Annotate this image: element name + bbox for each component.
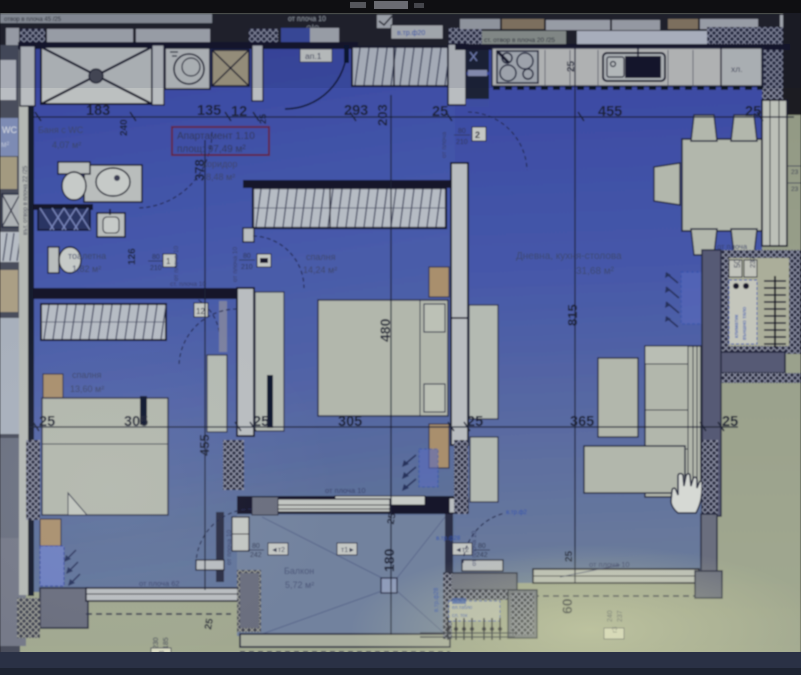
svg-text:80: 80 <box>478 543 486 550</box>
svg-text:12: 12 <box>231 104 247 120</box>
svg-text:1,82 м²: 1,82 м² <box>72 264 101 274</box>
svg-text:от плоча 10: от плоча 10 <box>173 245 180 281</box>
svg-text:ст. плоча 10: ст. плоча 10 <box>170 281 206 288</box>
svg-text:т1►: т1► <box>341 547 355 554</box>
svg-text:климатик: климатик <box>734 314 740 338</box>
svg-text:спалня: спалня <box>306 252 336 262</box>
svg-text:1: 1 <box>166 257 171 266</box>
svg-text:135: 135 <box>197 103 221 119</box>
svg-text:237: 237 <box>750 256 757 268</box>
svg-text:23: 23 <box>791 169 799 176</box>
svg-text:площ: 97,49 м²: площ: 97,49 м² <box>177 144 246 155</box>
svg-text:293: 293 <box>344 103 368 119</box>
svg-text:от плоча 10: от плоча 10 <box>232 246 239 282</box>
svg-text:25: 25 <box>432 104 448 120</box>
svg-text:Апартамент 1.10: Апартамент 1.10 <box>177 131 255 142</box>
svg-text:23: 23 <box>791 186 799 193</box>
svg-text:815: 815 <box>565 304 580 326</box>
svg-text:външно тяло: външно тяло <box>742 307 748 340</box>
svg-text:коридор: коридор <box>203 159 237 169</box>
svg-text:тоалетна: тоалетна <box>68 251 106 261</box>
svg-text:25: 25 <box>467 414 483 430</box>
svg-text:2: 2 <box>475 130 480 140</box>
svg-text:80: 80 <box>152 254 160 261</box>
svg-text:от плоча: от плоча <box>441 132 448 158</box>
svg-text:365: 365 <box>570 414 594 430</box>
svg-text:240: 240 <box>119 119 130 136</box>
svg-text:378: 378 <box>192 159 207 181</box>
svg-text:183: 183 <box>86 103 110 119</box>
svg-text:Дневна, кухня-столова: Дневна, кухня-столова <box>516 251 622 262</box>
svg-text:25: 25 <box>258 114 268 124</box>
svg-text:305: 305 <box>338 414 362 430</box>
svg-text:80: 80 <box>458 128 466 135</box>
svg-text:80: 80 <box>243 253 251 260</box>
svg-text:в.тр.ф28: в.тр.ф28 <box>436 536 461 542</box>
svg-text:210: 210 <box>241 264 253 271</box>
svg-text:31,68 м²: 31,68 м² <box>576 266 615 277</box>
svg-text:25: 25 <box>745 104 761 120</box>
svg-text:4,07 м²: 4,07 м² <box>52 140 81 150</box>
svg-text:203: 203 <box>375 104 390 126</box>
svg-text:126: 126 <box>127 248 138 265</box>
svg-text:в.тр.ф2: в.тр.ф2 <box>506 510 528 516</box>
svg-text:Баня с WC: Баня с WC <box>38 125 84 135</box>
svg-text:180: 180 <box>381 548 397 572</box>
svg-text:455: 455 <box>598 104 622 120</box>
svg-text:210: 210 <box>456 139 468 146</box>
svg-text:210: 210 <box>150 265 162 272</box>
svg-text:◄т2: ◄т2 <box>455 547 469 554</box>
svg-text:480: 480 <box>377 318 393 342</box>
svg-text:25: 25 <box>722 414 738 430</box>
svg-text:WC: WC <box>2 125 17 135</box>
svg-text:8,48 м²: 8,48 м² <box>206 172 235 182</box>
svg-text:50: 50 <box>733 259 742 268</box>
svg-text:м²: м² <box>1 140 10 149</box>
svg-text:14,24 м²: 14,24 м² <box>303 265 337 275</box>
